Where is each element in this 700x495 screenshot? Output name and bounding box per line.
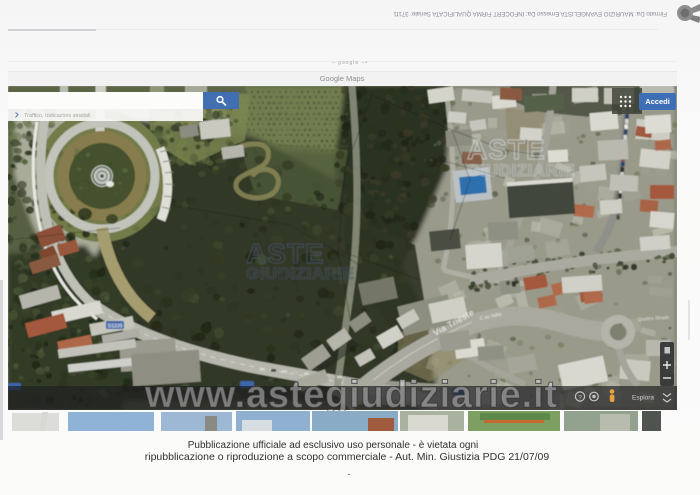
svg-text:Traffico, Indicazioni stradali: Traffico, Indicazioni stradali	[24, 113, 90, 119]
svg-text:Accedi: Accedi	[645, 97, 670, 106]
svg-text:Esplora: Esplora	[632, 395, 654, 402]
svg-text:www.astegiudiziarie.it: www.astegiudiziarie.it	[144, 374, 557, 416]
svg-text:GIUDIZIARIE: GIUDIZIARIE	[467, 161, 575, 180]
svg-text:SS339: SS339	[107, 324, 122, 330]
svg-text:GIUDIZIARIE: GIUDIZIARIE	[246, 264, 354, 283]
svg-text:?: ?	[578, 395, 582, 402]
